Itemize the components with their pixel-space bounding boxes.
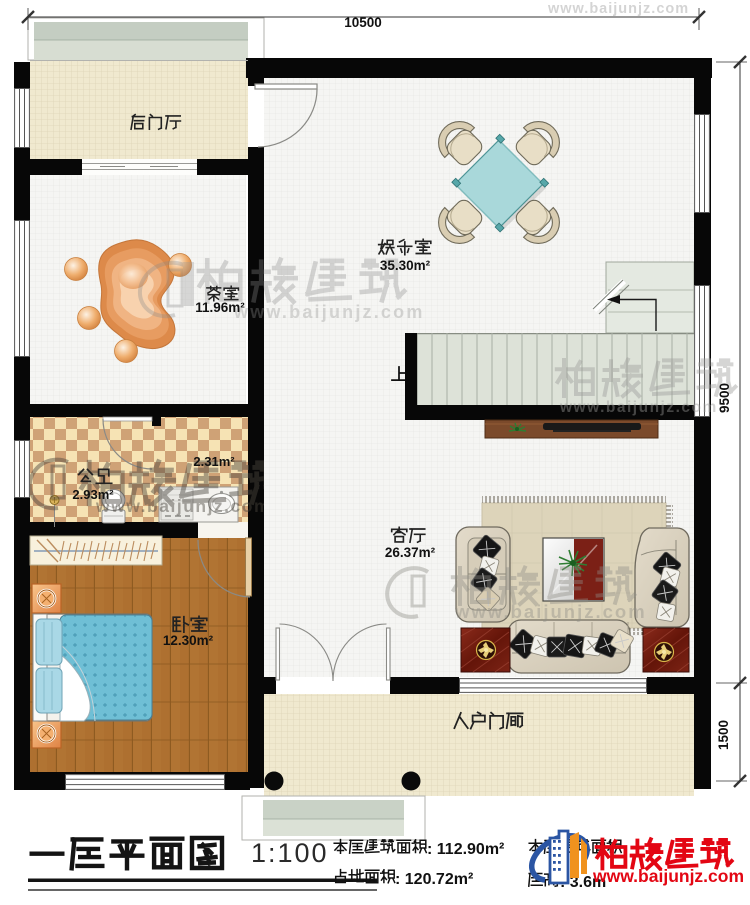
svg-text:10500: 10500 bbox=[344, 15, 382, 30]
svg-text:www.baijunjz.com: www.baijunjz.com bbox=[547, 1, 689, 17]
svg-text:12.30m²: 12.30m² bbox=[163, 633, 214, 648]
svg-text:www.baijunjz.com: www.baijunjz.com bbox=[95, 496, 271, 516]
svg-text:2.31m²: 2.31m² bbox=[193, 454, 235, 469]
svg-text:www.baijunjz.com: www.baijunjz.com bbox=[592, 866, 744, 886]
svg-text:www.baijunjz.com: www.baijunjz.com bbox=[454, 601, 647, 622]
svg-text:www.baijunjz.com: www.baijunjz.com bbox=[233, 302, 425, 322]
svg-text:: 120.72m²: : 120.72m² bbox=[395, 871, 473, 888]
svg-text:2.93m²: 2.93m² bbox=[72, 487, 114, 502]
svg-text:1:100: 1:100 bbox=[251, 838, 329, 868]
svg-text:: 112.90m²: : 112.90m² bbox=[427, 841, 504, 858]
svg-text:1500: 1500 bbox=[716, 720, 731, 750]
svg-text:35.30m²: 35.30m² bbox=[380, 258, 431, 273]
svg-text:9500: 9500 bbox=[717, 383, 732, 413]
svg-text:www.baijunjz.com: www.baijunjz.com bbox=[559, 399, 718, 416]
svg-text:26.37m²: 26.37m² bbox=[385, 545, 436, 560]
svg-text:11.96m²: 11.96m² bbox=[195, 300, 245, 315]
